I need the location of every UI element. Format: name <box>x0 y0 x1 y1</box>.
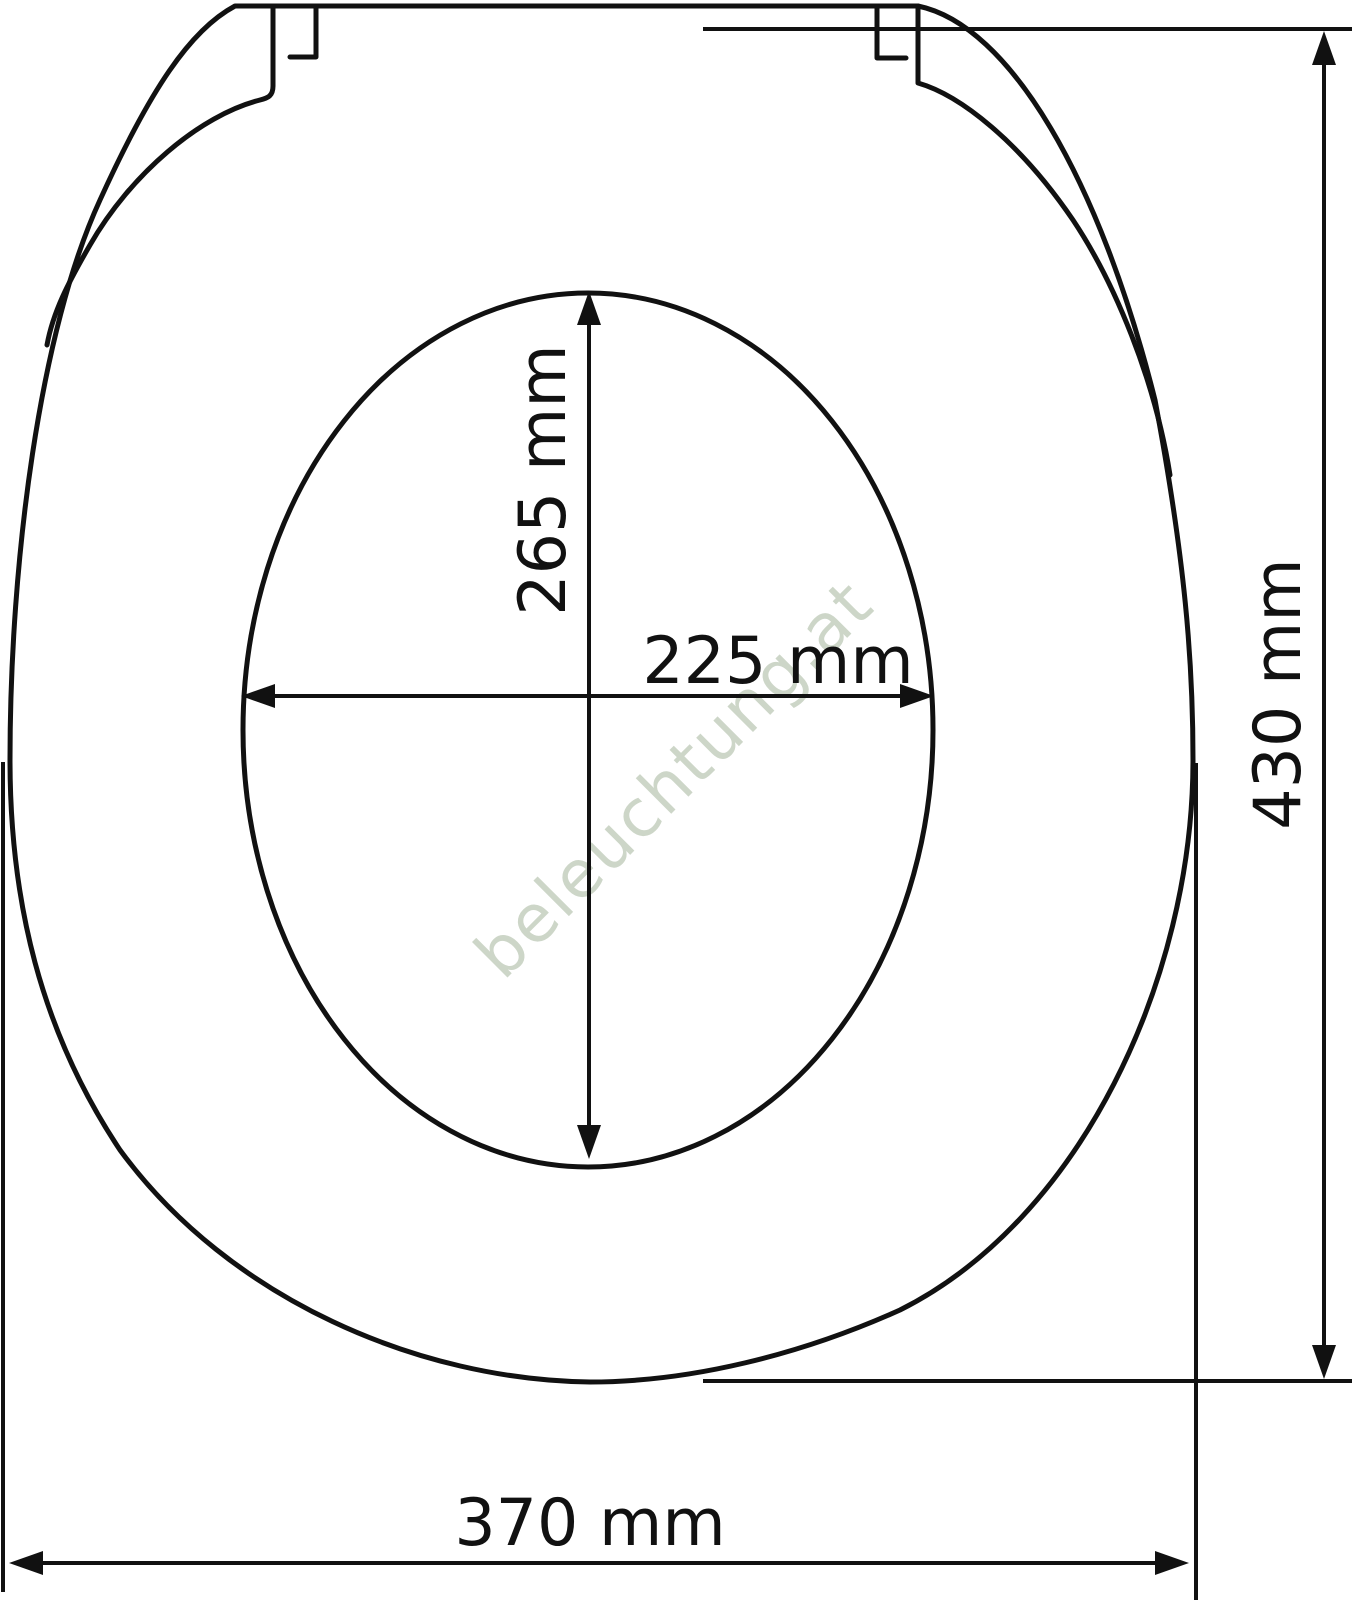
label-overall-length: 430 mm <box>1241 558 1316 829</box>
arrowhead-265-bottom <box>577 1125 601 1159</box>
arrowhead-430-top <box>1312 31 1336 65</box>
dimension-diagram: beleuchtung.at 265 mm 225 m <box>0 0 1352 1600</box>
arrowhead-265-top <box>577 291 601 325</box>
dimension-inner-height: 265 mm <box>506 291 601 1159</box>
left-hinge-and-rim-curve <box>47 6 273 345</box>
dimension-overall-length: 430 mm <box>1241 31 1336 1379</box>
arrowhead-370-left <box>9 1551 43 1575</box>
arrowhead-430-bottom <box>1312 1345 1336 1379</box>
arrowhead-370-right <box>1155 1551 1189 1575</box>
dimension-overall-width: 370 mm <box>9 1486 1189 1575</box>
label-inner-height: 265 mm <box>506 344 581 615</box>
toilet-seat-diagram-svg: beleuchtung.at 265 mm 225 m <box>0 0 1352 1600</box>
right-hinge-and-rim-curve <box>918 6 1170 475</box>
left-hinge-tab <box>290 6 316 57</box>
label-inner-width: 225 mm <box>642 624 913 699</box>
right-hinge-tab <box>877 6 906 58</box>
label-overall-width: 370 mm <box>454 1486 725 1561</box>
